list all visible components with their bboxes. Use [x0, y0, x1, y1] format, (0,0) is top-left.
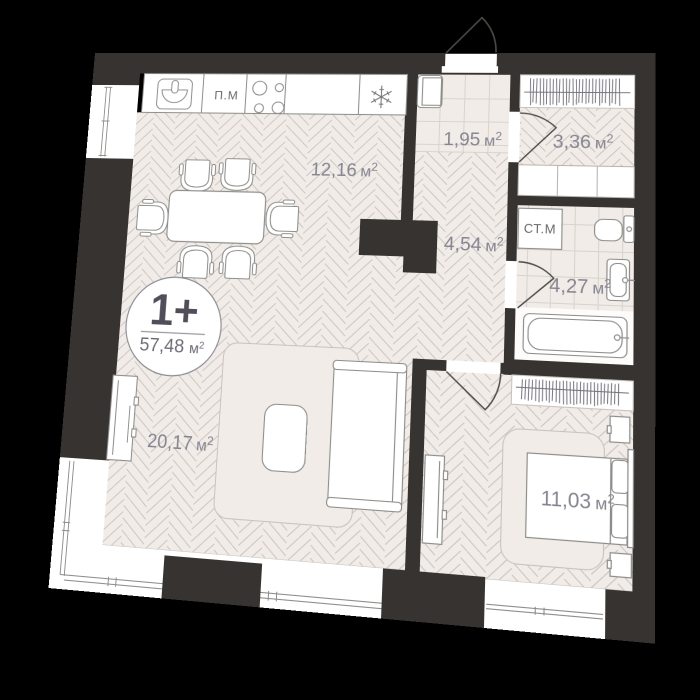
- svg-text:СТ.М: СТ.М: [524, 222, 557, 237]
- svg-text:1,95 м2: 1,95 м2: [443, 129, 503, 151]
- svg-text:3,36 м2: 3,36 м2: [553, 131, 614, 153]
- svg-text:1+: 1+: [148, 285, 200, 336]
- svg-text:П.М: П.М: [214, 90, 239, 103]
- svg-text:4,27 м2: 4,27 м2: [549, 274, 612, 299]
- svg-text:4,54 м2: 4,54 м2: [444, 233, 505, 257]
- svg-text:12,16 м2: 12,16 м2: [310, 159, 378, 181]
